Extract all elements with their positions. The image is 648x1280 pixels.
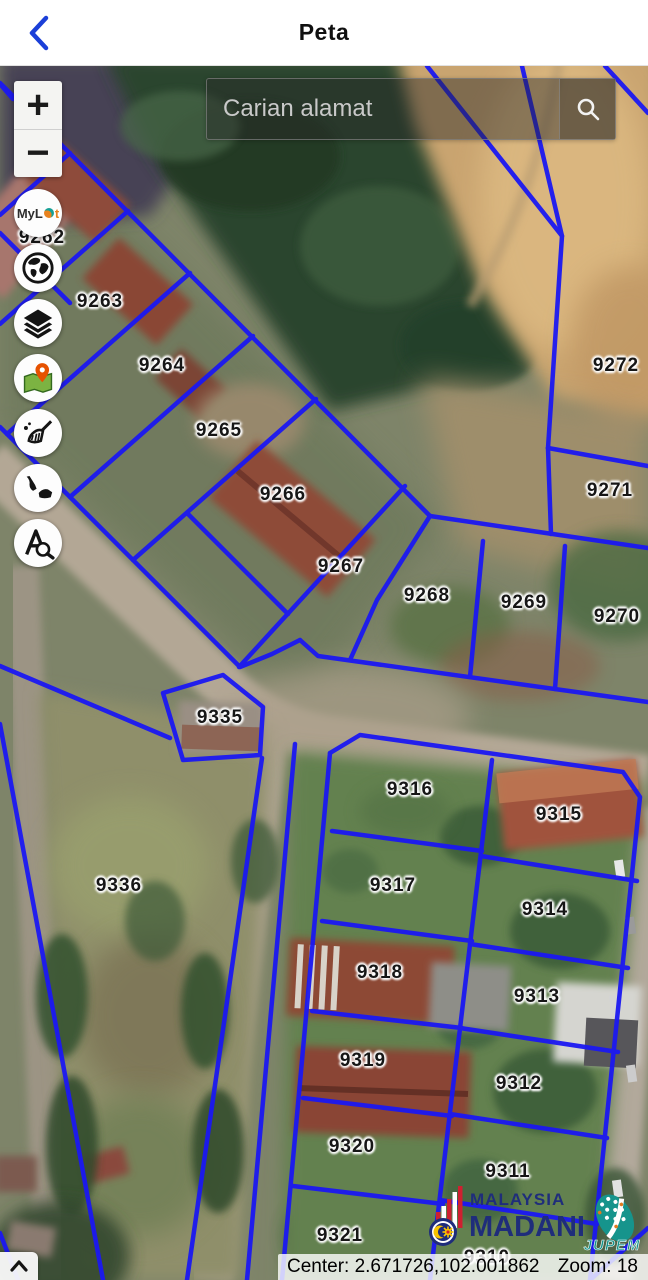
madani-wordmark: MADANI [469,1211,585,1243]
search-input[interactable] [207,79,559,139]
parcel-label-9312: 9312 [496,1073,542,1095]
text-search-button[interactable] [14,519,62,567]
parcel-label-9264: 9264 [139,355,185,377]
jupem-wordmark: JUPEM [584,1237,641,1254]
parcel-label-9336: 9336 [96,875,142,897]
mylot-button[interactable]: MyLt [14,189,62,237]
map-zoom-control: + − [14,81,62,177]
zoom-out-button[interactable]: − [14,130,62,178]
malaysia-extent-button[interactable] [14,464,62,512]
center-coordinates: Center: 2.671726,102.001862 [287,1256,540,1278]
chevron-up-icon [9,1259,29,1273]
back-button[interactable] [14,8,64,58]
satellite-imagery [0,66,648,1280]
locate-on-map-button[interactable] [14,354,62,402]
zoom-in-button[interactable]: + [14,81,62,130]
broom-icon [21,416,55,450]
zoom-level: Zoom: 18 [558,1256,638,1278]
map-tools: MyLt [14,189,62,574]
address-search-bar [206,78,616,140]
chevron-left-icon [24,14,54,52]
parcel-label-9268: 9268 [404,585,450,607]
parcel-label-9272: 9272 [593,355,639,377]
parcel-label-9319: 9319 [340,1050,386,1072]
malaysia-wordmark: MALAYSIA [470,1190,565,1209]
map-canvas[interactable]: 9262926392649265926692679268926992709271… [0,66,648,1280]
mylot-logo: MyLt [17,206,59,221]
parcel-label-9318: 9318 [357,962,403,984]
search-button[interactable] [559,79,615,139]
parcel-label-9315: 9315 [536,804,582,826]
expand-panel-button[interactable] [0,1252,38,1280]
font-search-icon [21,526,55,560]
parcel-label-9270: 9270 [594,606,640,628]
map-status-bar: Center: 2.671726,102.001862 Zoom: 18 [278,1254,648,1280]
parcel-label-9269: 9269 [501,592,547,614]
parcel-label-9313: 9313 [514,986,560,1008]
malaysia-madani-logo: MALAYSIA MADANI [428,1184,590,1255]
jupem-logo: JUPEM [582,1192,648,1259]
layers-button[interactable] [14,299,62,347]
parcel-label-9271: 9271 [587,480,633,502]
parcel-label-9263: 9263 [77,291,123,313]
layers-icon [21,306,55,340]
parcel-label-9335: 9335 [197,707,243,729]
parcel-label-9317: 9317 [370,875,416,897]
page-title: Peta [299,19,350,46]
parcel-label-9314: 9314 [522,899,568,921]
malaysia-map-icon [21,471,55,505]
app-header: Peta [0,0,648,66]
parcel-label-9267: 9267 [318,556,364,578]
madani-emblem-icon [429,1186,463,1246]
map-marker-icon [21,361,55,395]
parcel-label-9321: 9321 [317,1225,363,1247]
globe-icon [21,251,55,285]
parcel-label-9316: 9316 [387,779,433,801]
mylot-dot-icon [44,208,54,218]
basemap-button[interactable] [14,244,62,292]
parcel-label-9311: 9311 [485,1161,530,1183]
app-screen: Peta [0,0,648,1280]
clear-map-button[interactable] [14,409,62,457]
search-icon [575,96,601,122]
parcel-label-9320: 9320 [329,1136,375,1158]
parcel-label-9266: 9266 [260,484,306,506]
parcel-label-9265: 9265 [196,420,242,442]
